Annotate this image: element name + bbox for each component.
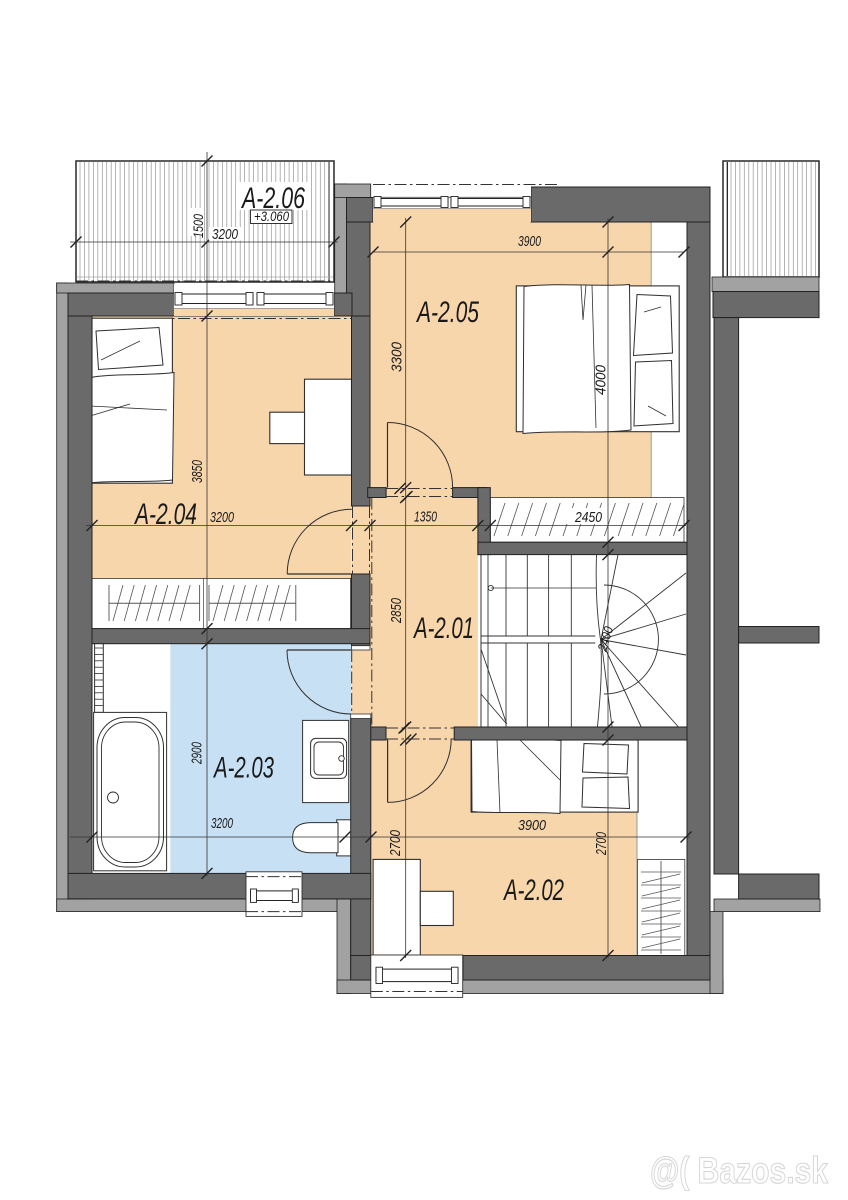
svg-text:4000: 4000 — [593, 364, 610, 395]
svg-text:A-2.02: A-2.02 — [503, 874, 565, 907]
svg-text:2450: 2450 — [574, 509, 602, 526]
svg-text:3900: 3900 — [518, 233, 541, 250]
svg-text:3200: 3200 — [210, 509, 234, 526]
svg-text:3300: 3300 — [389, 341, 406, 372]
svg-text:A-2.04: A-2.04 — [134, 498, 197, 531]
svg-text:A-2.01: A-2.01 — [413, 612, 474, 645]
svg-text:+3.060: +3.060 — [254, 209, 289, 224]
svg-text:3900: 3900 — [518, 817, 547, 834]
svg-text:2850: 2850 — [388, 598, 405, 624]
svg-text:3200: 3200 — [212, 226, 239, 243]
svg-text:3200: 3200 — [211, 815, 233, 832]
svg-text:2700: 2700 — [387, 829, 404, 856]
svg-text:2700: 2700 — [593, 832, 610, 856]
svg-text:1500: 1500 — [191, 214, 206, 238]
svg-text:A-2.05: A-2.05 — [416, 296, 480, 329]
svg-text:2900: 2900 — [189, 742, 206, 765]
svg-text:1350: 1350 — [414, 509, 437, 526]
svg-text:A-2.03: A-2.03 — [213, 752, 275, 785]
svg-text:3850: 3850 — [189, 460, 206, 483]
svg-text:@( Bazos.sk: @( Bazos.sk — [650, 1150, 828, 1191]
